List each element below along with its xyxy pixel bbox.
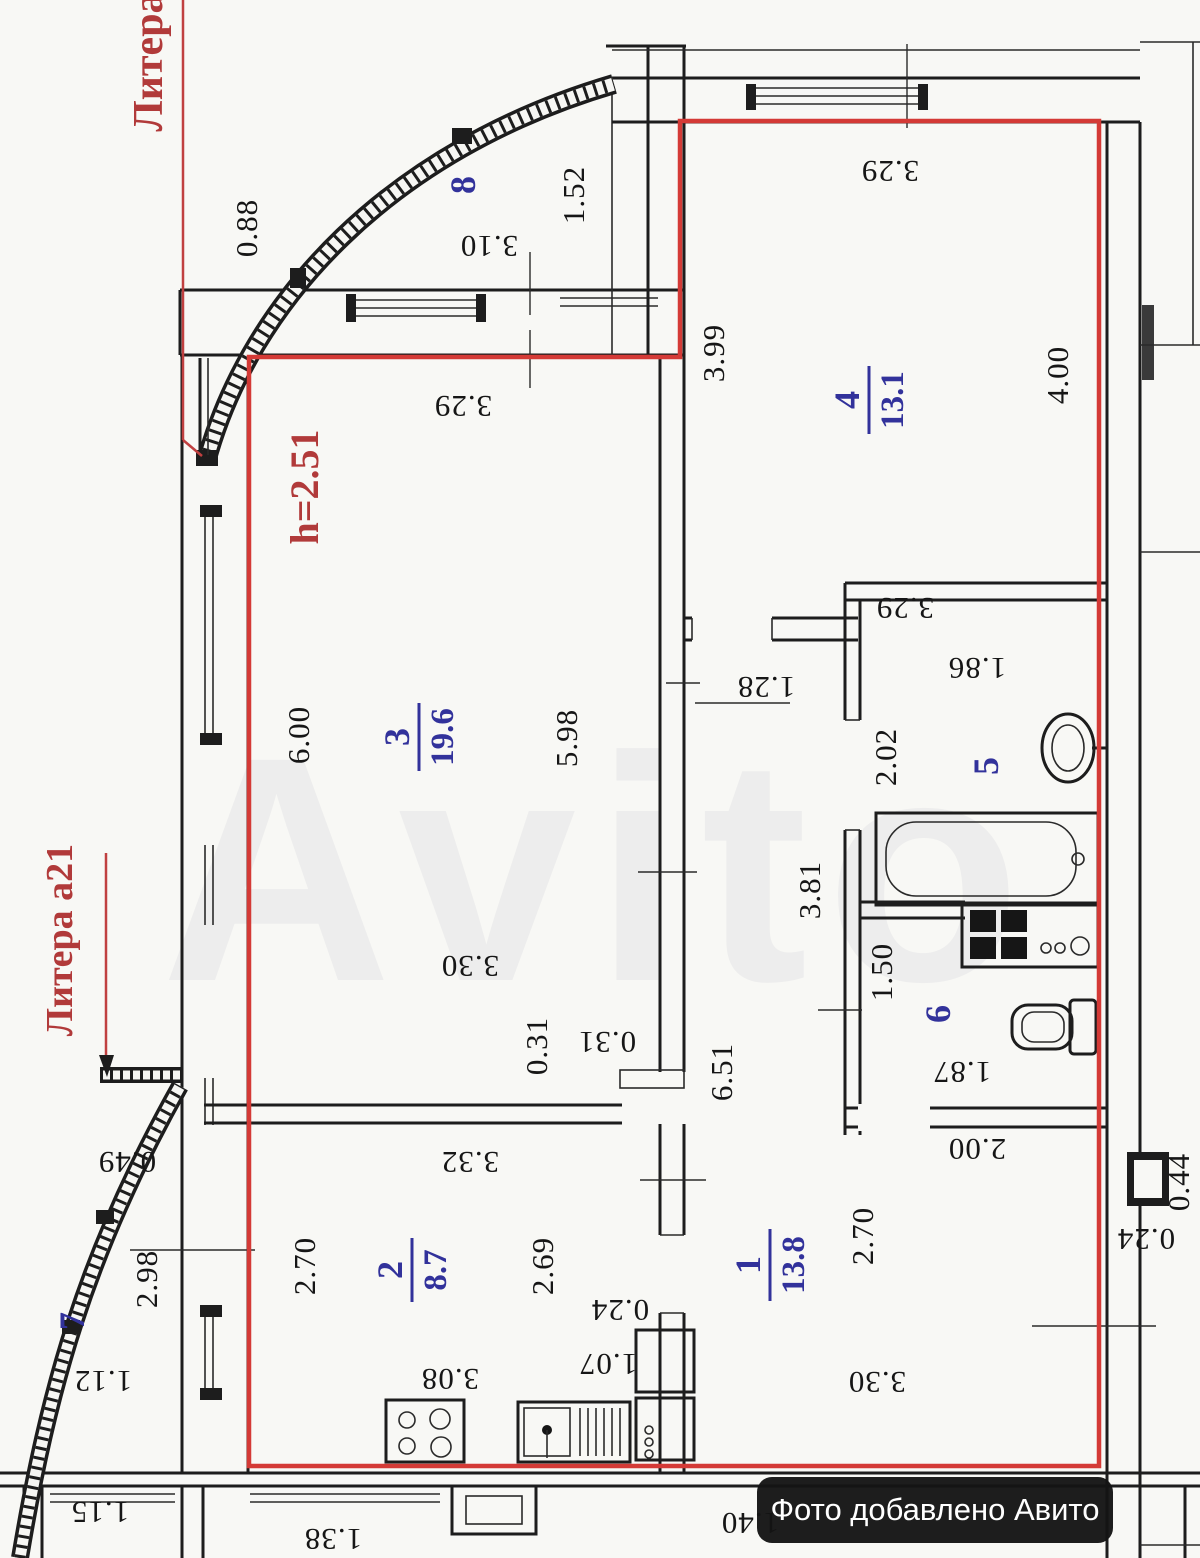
svg-text:1.52: 1.52	[556, 166, 591, 224]
svg-text:1.12: 1.12	[74, 1364, 132, 1399]
litera-left-label: Литера а21	[39, 844, 81, 1036]
room-8-label: 8	[443, 176, 483, 194]
svg-text:2.70: 2.70	[287, 1237, 322, 1295]
ceiling-height-label: h=2.51	[282, 429, 327, 544]
svg-text:4.00: 4.00	[1040, 346, 1075, 404]
svg-text:0.24: 0.24	[1117, 1222, 1175, 1257]
svg-text:3.08: 3.08	[421, 1362, 479, 1397]
svg-text:13.8: 13.8	[776, 1236, 812, 1294]
svg-text:0.44: 0.44	[1161, 1153, 1196, 1211]
svg-text:0.88: 0.88	[229, 199, 264, 257]
svg-text:2.98: 2.98	[129, 1250, 164, 1308]
svg-text:Фото добавлено Авито: Фото добавлено Авито	[770, 1492, 1099, 1527]
room-7-label: 7	[52, 1312, 92, 1330]
avito-photo-badge: Фото добавлено Авито	[757, 1477, 1113, 1543]
svg-text:5.98: 5.98	[549, 709, 584, 767]
floor-plan: Avito	[0, 0, 1200, 1558]
svg-text:2: 2	[370, 1261, 410, 1279]
svg-text:6.00: 6.00	[281, 706, 316, 764]
svg-text:1.15: 1.15	[71, 1495, 129, 1530]
svg-text:1.86: 1.86	[948, 651, 1006, 686]
svg-text:4: 4	[827, 391, 867, 409]
svg-text:3.29: 3.29	[861, 154, 919, 189]
litera-top-label: Литера	[126, 0, 172, 132]
svg-text:3.30: 3.30	[441, 949, 499, 984]
svg-text:8: 8	[443, 176, 483, 194]
svg-text:0.24: 0.24	[591, 1293, 649, 1328]
svg-text:0.31: 0.31	[578, 1025, 636, 1060]
svg-text:1: 1	[728, 1256, 768, 1274]
svg-text:3.10: 3.10	[460, 229, 518, 264]
svg-text:2.02: 2.02	[868, 728, 903, 786]
svg-text:1.07: 1.07	[579, 1347, 637, 1382]
svg-text:2.70: 2.70	[845, 1207, 880, 1265]
svg-text:3.29: 3.29	[876, 591, 934, 626]
room-6-label: 6	[918, 1005, 958, 1023]
svg-text:1.38: 1.38	[304, 1522, 362, 1557]
svg-text:2.00: 2.00	[948, 1132, 1006, 1167]
room-5-label: 5	[966, 757, 1006, 775]
svg-text:1.28: 1.28	[737, 670, 795, 705]
svg-text:0.49: 0.49	[98, 1145, 156, 1180]
svg-text:3.81: 3.81	[792, 861, 827, 919]
svg-text:6.51: 6.51	[704, 1043, 739, 1101]
svg-text:3: 3	[377, 728, 417, 746]
svg-text:19.6: 19.6	[425, 708, 461, 766]
svg-text:13.1: 13.1	[875, 371, 911, 429]
svg-text:8.7: 8.7	[418, 1249, 454, 1290]
svg-text:3.29: 3.29	[434, 389, 492, 424]
svg-text:3.30: 3.30	[848, 1365, 906, 1400]
svg-text:3.32: 3.32	[441, 1145, 499, 1180]
svg-text:2.69: 2.69	[525, 1237, 560, 1295]
svg-text:1.87: 1.87	[933, 1055, 991, 1090]
svg-text:1.50: 1.50	[864, 943, 899, 1001]
svg-text:3.99: 3.99	[696, 324, 731, 382]
svg-text:0.31: 0.31	[519, 1017, 554, 1075]
